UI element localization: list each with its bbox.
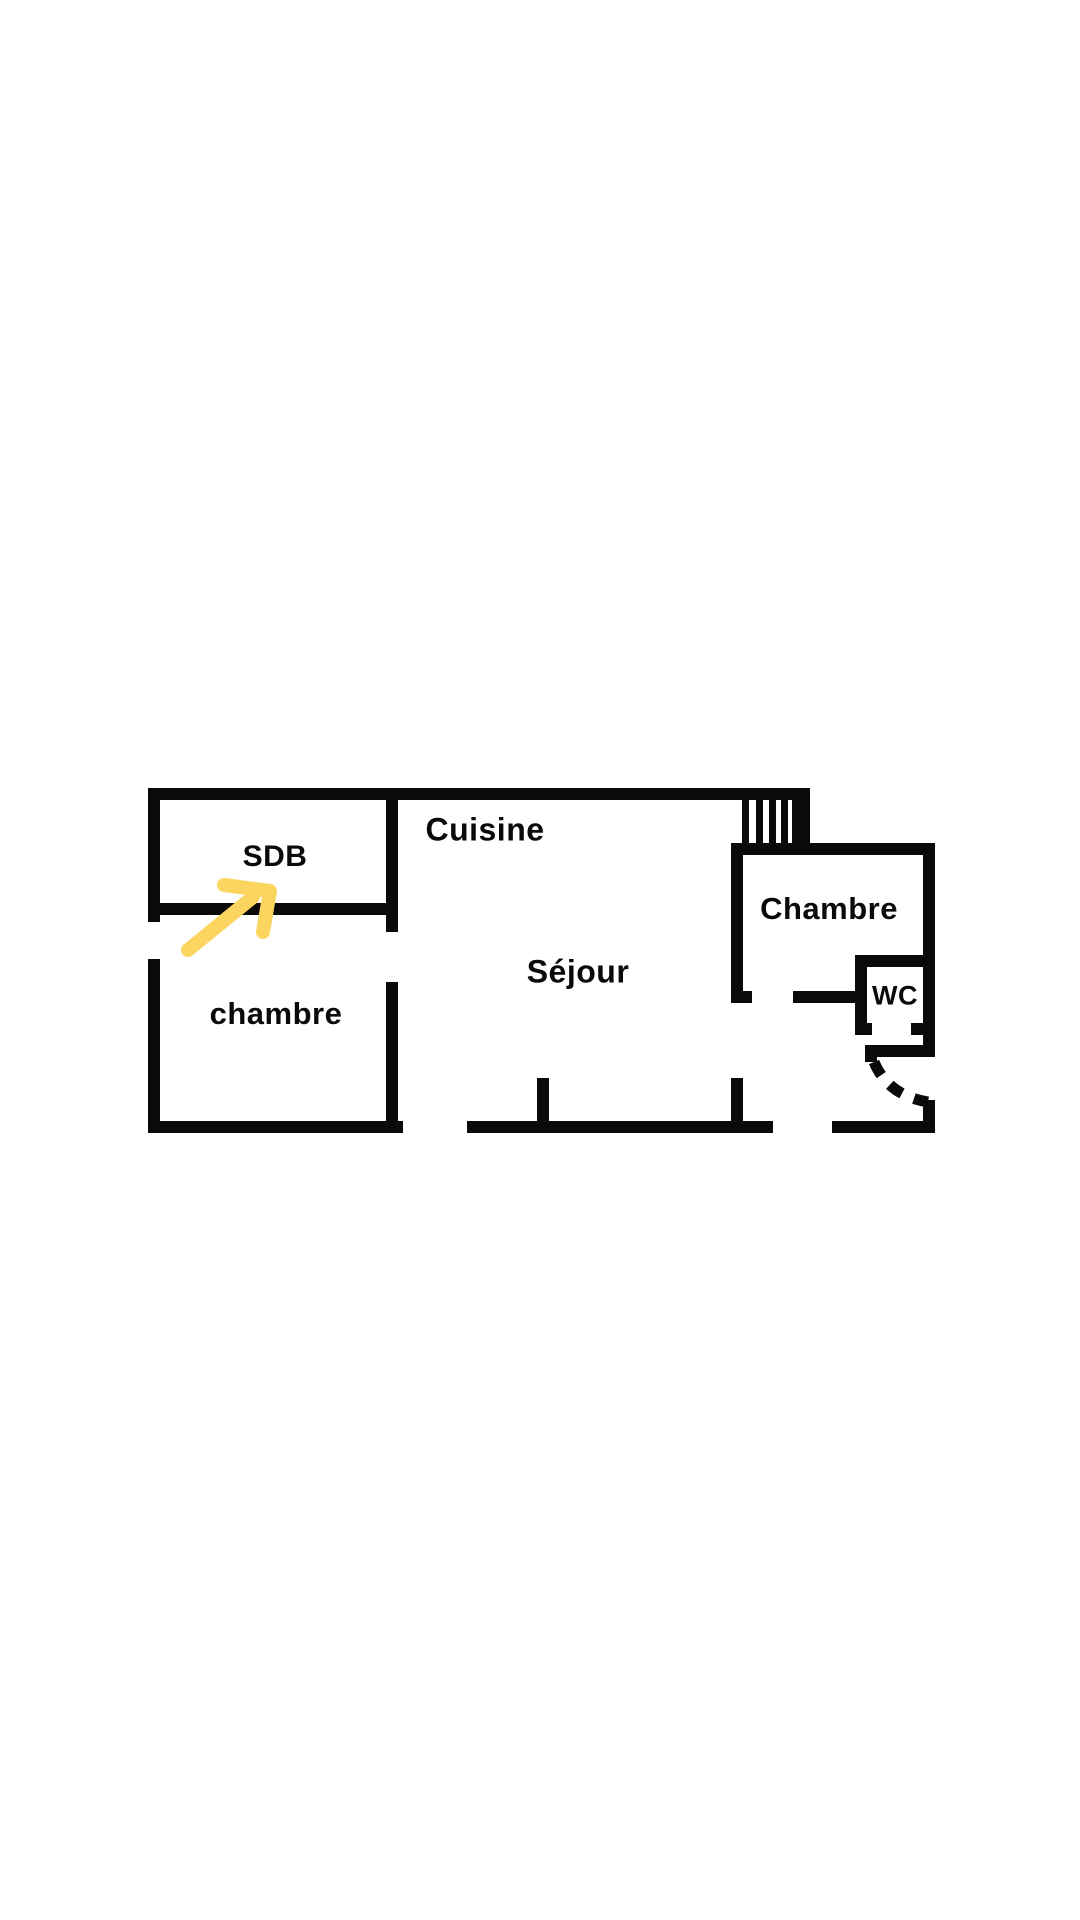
room-label-wc: WC [872, 981, 918, 1012]
room-label-cuisine: Cuisine [425, 812, 544, 849]
wall-divider-lower [386, 982, 398, 1133]
window-hatch-bar [781, 798, 788, 844]
wall-outer-right-upper [923, 843, 935, 1057]
window-hatch-bar [756, 798, 763, 844]
wall-chambre2-top [731, 843, 935, 855]
wall-sejour-bottom [467, 1121, 773, 1133]
wall-hallway [793, 991, 855, 1003]
wall-sejour-stub-right [731, 1078, 743, 1133]
wall-wc-door-stub-left [855, 1023, 872, 1035]
window-hatch-bar [742, 798, 749, 844]
wall-outer-left-lower [148, 959, 160, 1133]
window-hatch-bar [792, 798, 799, 844]
room-label-chambre-left: chambre [210, 996, 343, 1032]
wall-outer-top [148, 788, 810, 800]
room-label-chambre-right: Chambre [760, 891, 898, 927]
wall-divider-upper [386, 788, 398, 932]
room-label-sdb: SDB [243, 840, 308, 874]
room-label-sejour: Séjour [527, 954, 630, 991]
entry-door-arc [874, 1062, 928, 1102]
wall-outer-right-lower [923, 1100, 935, 1133]
wall-wc-door-stub-right [911, 1023, 923, 1035]
wall-chambre-bottom [148, 1121, 403, 1133]
floor-plan: SDB Cuisine Séjour chambre Chambre WC [0, 0, 1080, 1920]
window-hatch-post [798, 788, 810, 843]
wall-entry-door-jamb [865, 1045, 877, 1062]
highlight-arrow-icon [188, 885, 270, 950]
wall-chambre2-left-foot [731, 991, 752, 1003]
wall-sdb-bottom [148, 903, 398, 915]
window-hatch-bar [769, 798, 776, 844]
wall-chambre2-left [731, 843, 743, 1003]
wall-outer-left-upper [148, 788, 160, 922]
wall-entry-bottom [832, 1121, 935, 1133]
wall-sejour-stub-left [537, 1078, 549, 1133]
